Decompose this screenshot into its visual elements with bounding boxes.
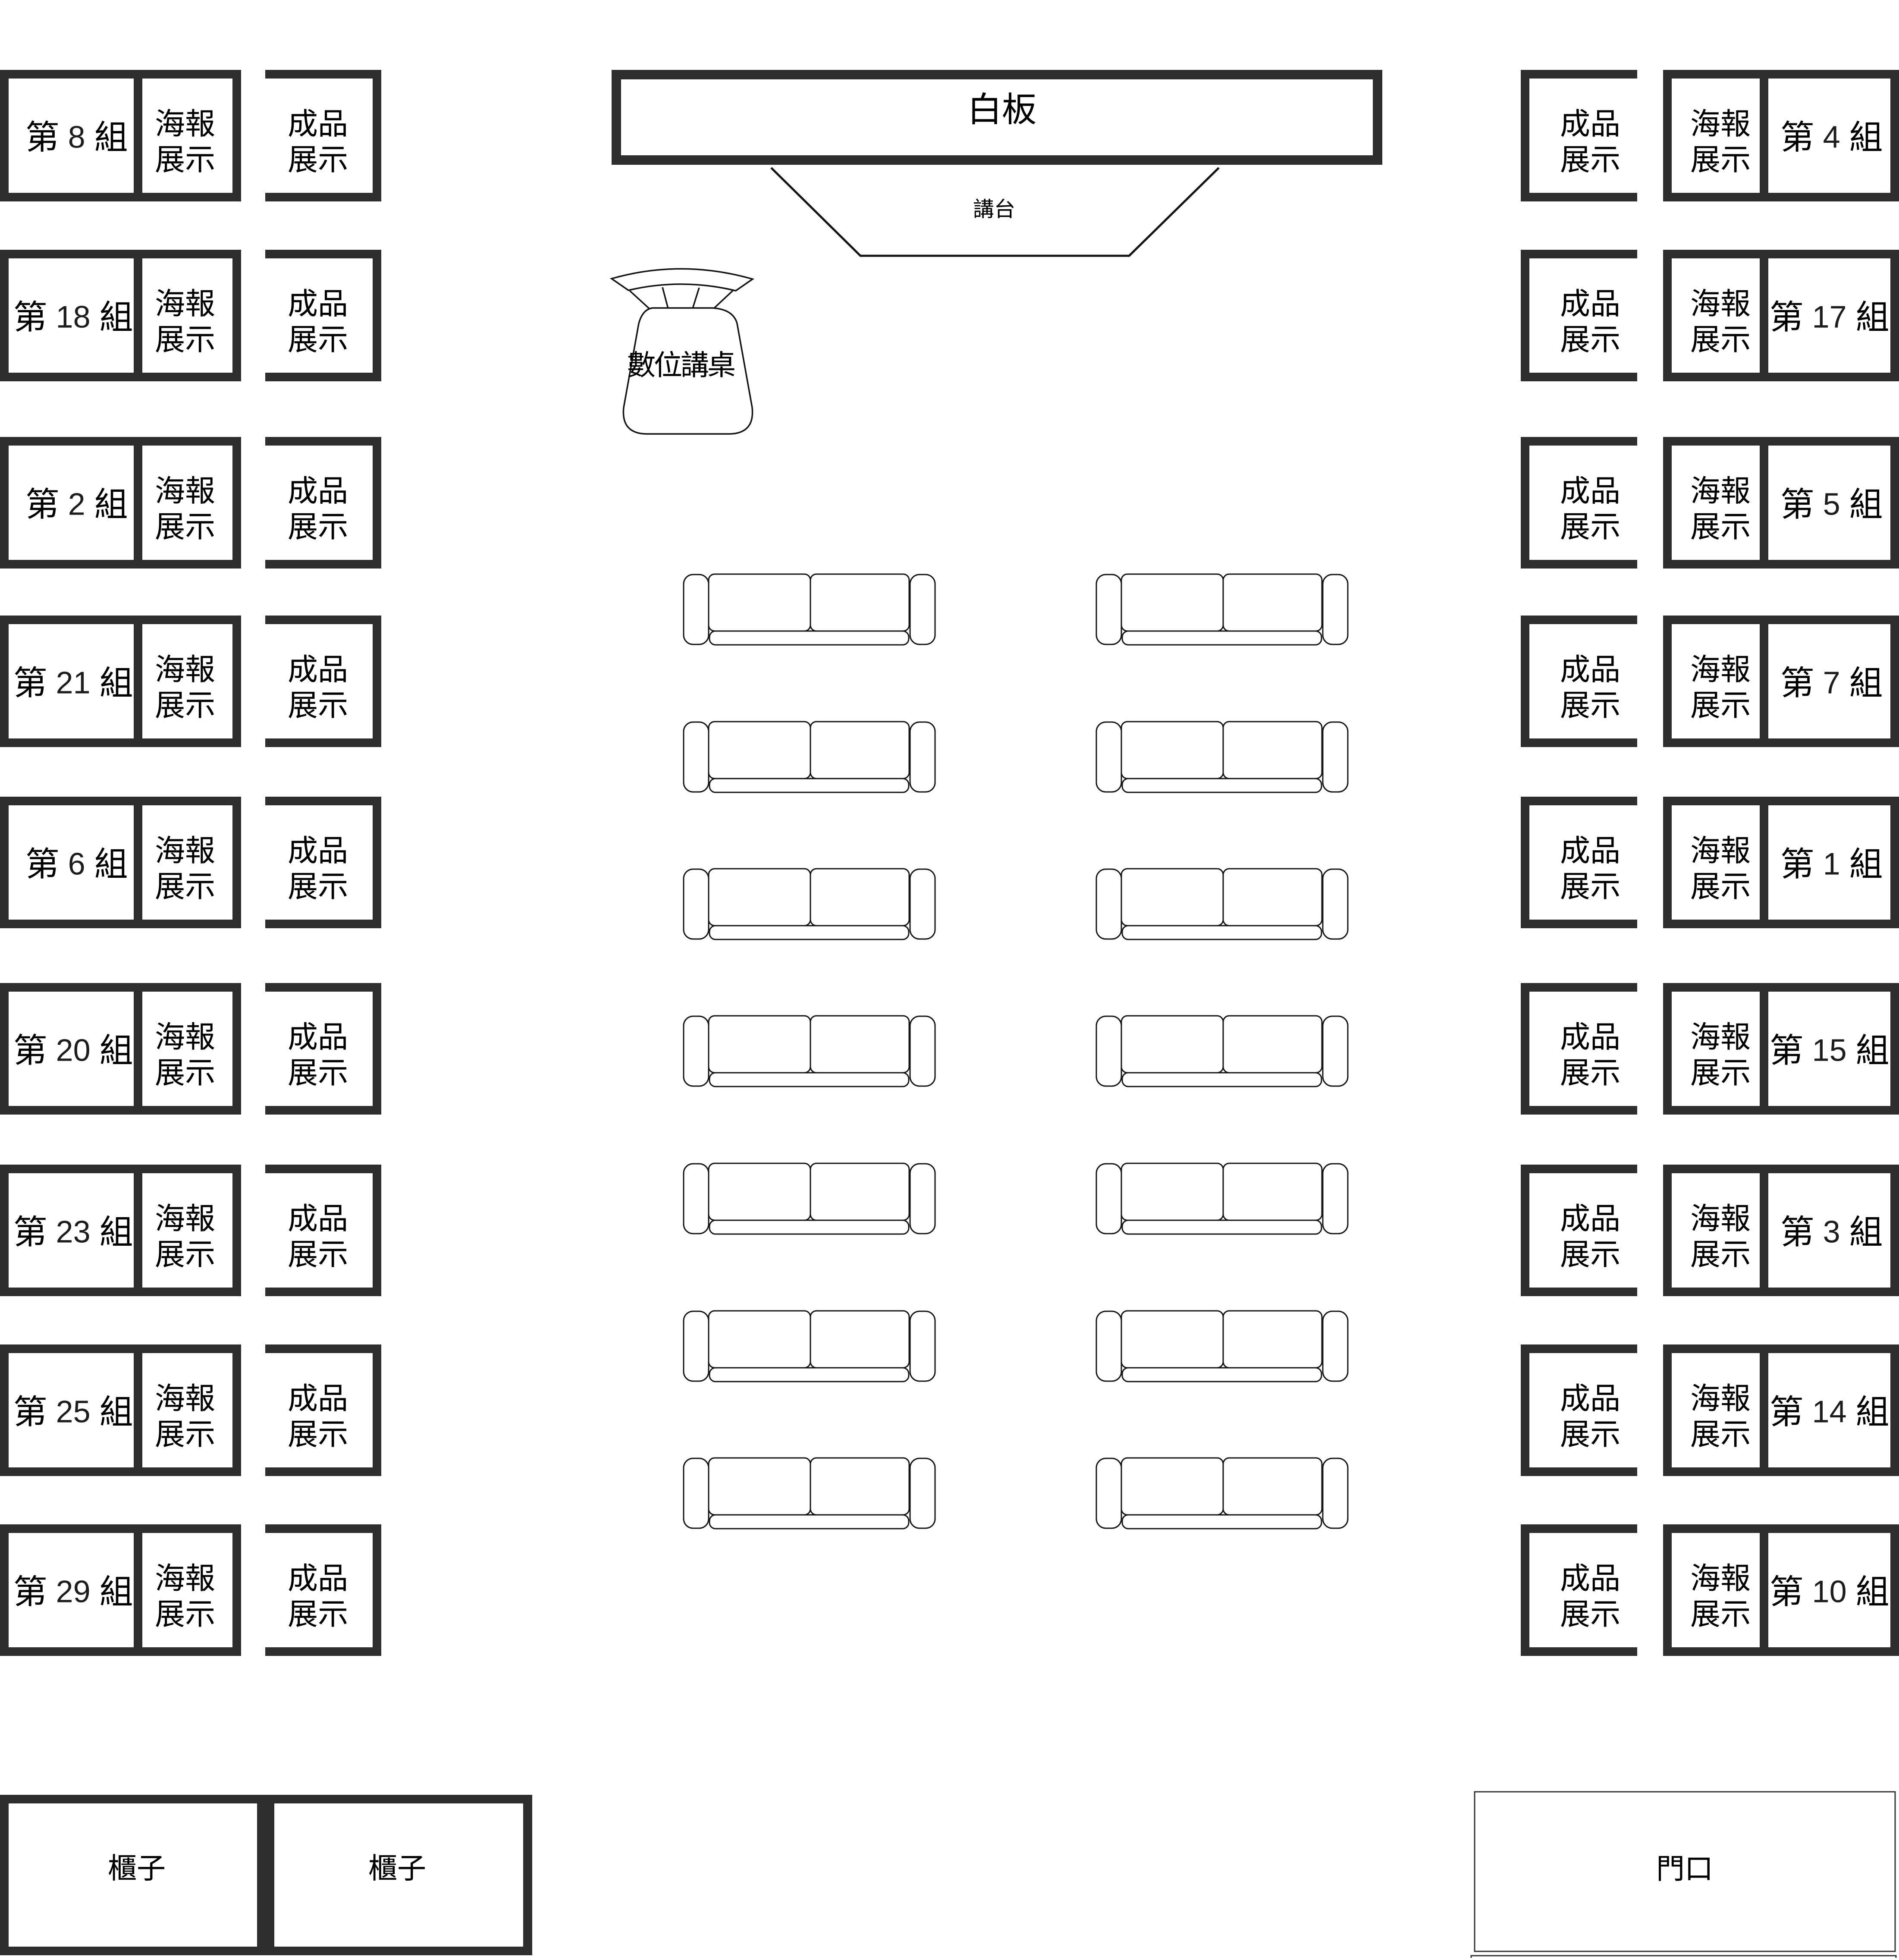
svg-text:25: 25 <box>56 1395 91 1429</box>
svg-text:15: 15 <box>1812 1033 1847 1068</box>
svg-text:10: 10 <box>1812 1575 1847 1609</box>
svg-text:3: 3 <box>1823 1215 1840 1250</box>
svg-text:2: 2 <box>68 487 85 522</box>
svg-text:29: 29 <box>56 1575 91 1609</box>
svg-text:6: 6 <box>68 847 85 882</box>
svg-text:1: 1 <box>1823 847 1840 882</box>
svg-text:20: 20 <box>56 1033 91 1068</box>
svg-text:17: 17 <box>1812 300 1847 335</box>
svg-text:8: 8 <box>68 120 85 155</box>
svg-text:7: 7 <box>1823 666 1840 700</box>
svg-text:5: 5 <box>1823 487 1840 522</box>
svg-text:18: 18 <box>56 300 91 335</box>
svg-text:23: 23 <box>56 1215 91 1250</box>
svg-text:21: 21 <box>56 666 91 700</box>
svg-text:14: 14 <box>1812 1395 1847 1429</box>
svg-text:4: 4 <box>1823 120 1840 155</box>
